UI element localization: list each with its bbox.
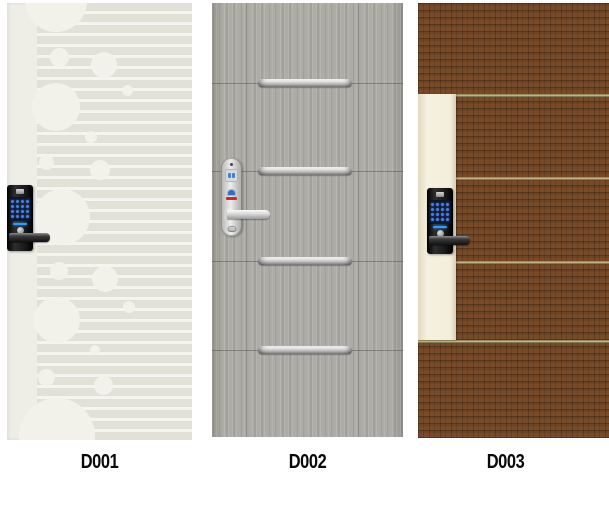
lever-handle xyxy=(227,210,270,219)
digital-lever-lock xyxy=(221,158,242,236)
keypad-icon xyxy=(9,197,31,221)
steel-bar xyxy=(258,79,352,87)
lock-logo-plate xyxy=(16,189,24,194)
product-image-door-3[interactable] xyxy=(418,3,609,438)
product-label-1: D001 xyxy=(24,451,176,474)
sensor-dot xyxy=(230,163,233,166)
product-label-3: D003 xyxy=(434,451,578,474)
product-label-2: D002 xyxy=(229,451,386,474)
card-reader-light xyxy=(433,226,447,228)
steel-bar xyxy=(258,167,352,175)
card-reader-light xyxy=(13,223,27,225)
panel-divider xyxy=(418,340,609,343)
thumb-turn-knob xyxy=(227,226,236,232)
panel-seam xyxy=(358,3,360,437)
product-gallery: D001 D002 D003 xyxy=(0,0,609,505)
panel-seam xyxy=(246,3,248,437)
lever-handle xyxy=(429,236,470,245)
digital-keypad-lock xyxy=(7,185,33,251)
steel-bar xyxy=(258,257,352,265)
keypad-icon xyxy=(429,200,451,224)
product-image-door-1[interactable] xyxy=(7,3,192,440)
steel-bar xyxy=(258,346,352,354)
brand-emblem xyxy=(226,189,238,200)
lock-display xyxy=(225,169,238,182)
lock-logo-plate xyxy=(436,192,444,197)
lever-handle xyxy=(9,233,50,242)
product-image-door-2[interactable] xyxy=(212,3,403,437)
digital-keypad-lock xyxy=(427,188,453,254)
